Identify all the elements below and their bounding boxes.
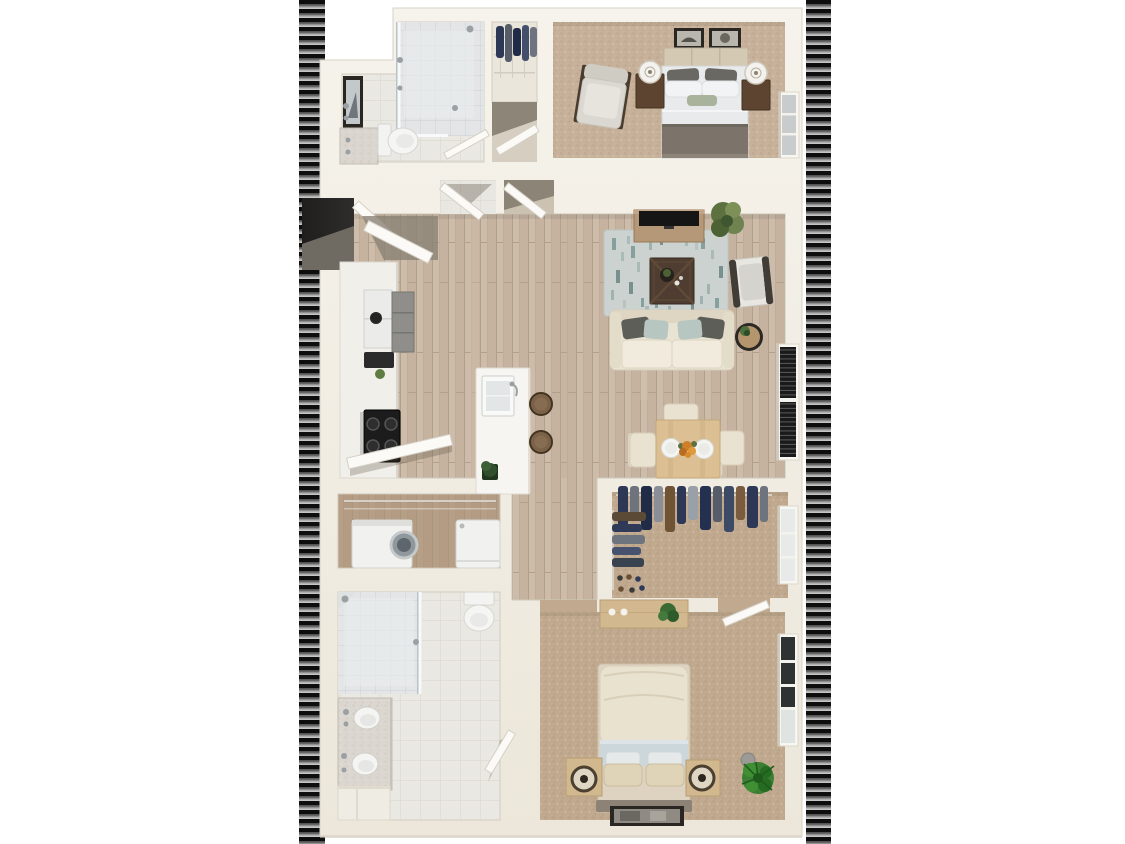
sage-lumbar-pillow bbox=[687, 95, 717, 106]
nightstand-2-right bbox=[686, 760, 720, 796]
tall-plant bbox=[711, 202, 744, 237]
bedroom-1-entry-niche bbox=[492, 102, 539, 162]
barstool-1 bbox=[530, 393, 552, 415]
microwave bbox=[364, 352, 394, 368]
armchair bbox=[573, 63, 632, 130]
kettle bbox=[370, 312, 382, 324]
dining-table bbox=[656, 420, 720, 478]
step-bench bbox=[338, 786, 390, 820]
washer bbox=[352, 520, 417, 568]
dresser bbox=[600, 600, 688, 628]
walk-in-closet bbox=[612, 486, 798, 598]
hanging-clothes-left bbox=[612, 512, 646, 567]
dining-chair-left bbox=[628, 433, 656, 467]
right-stripe-band bbox=[806, 0, 831, 844]
tv bbox=[639, 211, 699, 226]
living-room-window bbox=[777, 344, 799, 460]
bed-1 bbox=[662, 66, 748, 158]
floor-plan-render bbox=[0, 0, 1125, 844]
shower-head bbox=[467, 26, 474, 33]
bedroom-2 bbox=[540, 598, 798, 826]
faucet-1 bbox=[346, 138, 351, 143]
counter-plant bbox=[375, 369, 385, 379]
potted-plant bbox=[742, 762, 774, 794]
dryer bbox=[456, 520, 500, 568]
toilet-2 bbox=[464, 592, 494, 631]
barstool-2 bbox=[530, 431, 552, 453]
kitchen-island bbox=[476, 368, 530, 494]
accent-chair bbox=[729, 256, 774, 308]
coffee-table bbox=[650, 258, 694, 304]
tv-console bbox=[634, 210, 704, 242]
shower-glass-panel bbox=[398, 22, 401, 136]
sofa bbox=[610, 310, 734, 370]
bottom-wall-shadow bbox=[320, 836, 802, 838]
table-lamp-left bbox=[639, 61, 661, 83]
shower-2-glass bbox=[419, 592, 422, 694]
shower-drain bbox=[452, 105, 458, 111]
double-vanity bbox=[338, 698, 392, 790]
closet-window bbox=[778, 506, 798, 584]
headboard bbox=[664, 48, 748, 68]
bathroom-2 bbox=[338, 592, 515, 820]
floor-art-frame bbox=[610, 806, 684, 826]
dining-chair-top bbox=[664, 404, 698, 422]
laundry-closet bbox=[338, 494, 500, 568]
dining-chair-right bbox=[718, 431, 744, 465]
upper-cabinets bbox=[392, 292, 414, 352]
table-lamp-right bbox=[745, 62, 767, 84]
bedroom-1-window bbox=[779, 92, 799, 158]
hall-closet bbox=[492, 22, 537, 102]
bedroom-2-window bbox=[778, 634, 798, 746]
bedroom-1 bbox=[553, 22, 799, 158]
nightstand-2-left bbox=[566, 758, 602, 796]
shower-2 bbox=[338, 592, 422, 694]
side-table bbox=[735, 323, 763, 351]
bed-2 bbox=[596, 664, 692, 812]
foot-blanket bbox=[662, 124, 748, 158]
